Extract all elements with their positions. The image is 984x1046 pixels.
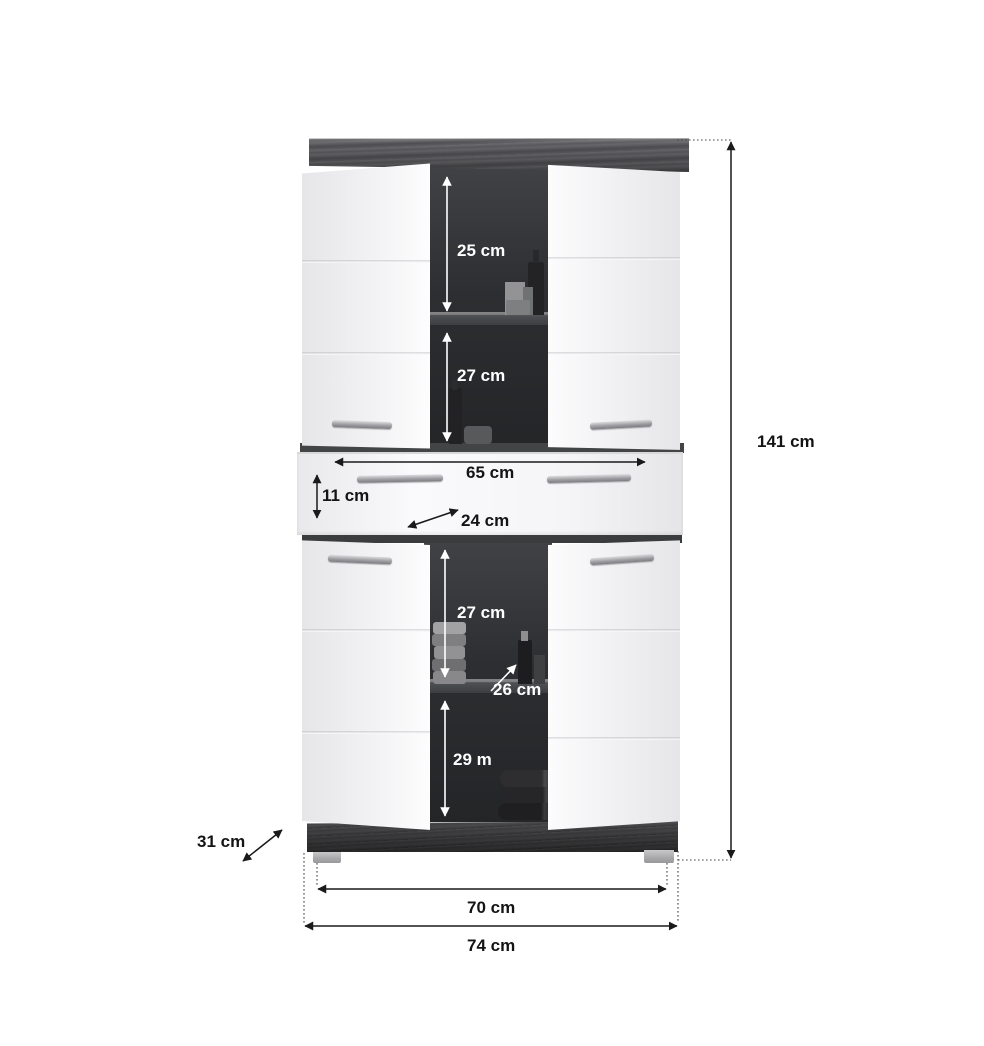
dim-label-27cm-upper: 27 cm [457,367,505,386]
dim-label-25cm: 25 cm [457,242,505,261]
dim-label-11cm: 11 cm [322,487,369,506]
dim-arrow-31cm [243,830,282,861]
dim-label-141cm: 141 cm [757,433,815,452]
dim-label-26cm: 26 cm [493,681,541,700]
dim-label-65cm: 65 cm [466,464,514,483]
dim-label-24cm: 24 cm [461,512,509,531]
dim-arrow-24cm [408,510,458,527]
product-dimension-diagram: 25 cm 27 cm 65 cm 11 cm 24 cm 27 cm 26 c… [0,0,984,1046]
dim-label-70cm: 70 cm [467,899,515,918]
dim-label-74cm: 74 cm [467,937,515,956]
dim-label-27cm-lower: 27 cm [457,604,505,623]
dim-label-31cm: 31 cm [197,833,245,852]
dim-label-29m: 29 m [453,751,492,770]
